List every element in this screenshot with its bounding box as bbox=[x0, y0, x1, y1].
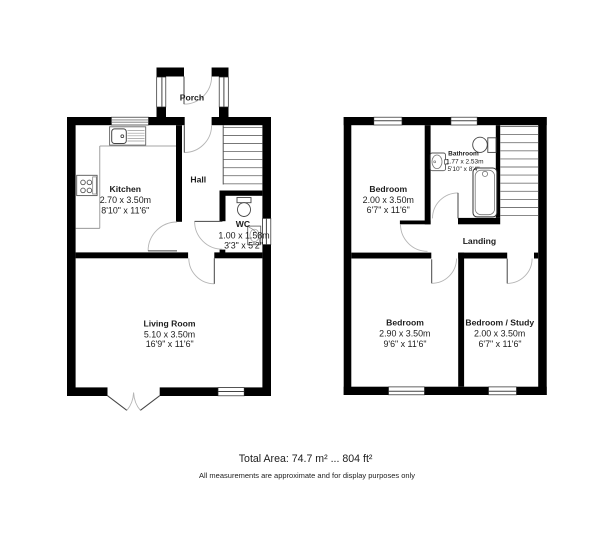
svg-text:Bedroom / Study: Bedroom / Study bbox=[465, 318, 534, 328]
svg-text:Bathroom: Bathroom bbox=[448, 150, 479, 157]
svg-text:9'6" x 11'6": 9'6" x 11'6" bbox=[383, 339, 426, 349]
svg-text:5.10 x 3.50m: 5.10 x 3.50m bbox=[144, 329, 195, 339]
svg-text:Hall: Hall bbox=[190, 174, 206, 184]
svg-text:1.00 x 1.58m: 1.00 x 1.58m bbox=[218, 231, 269, 241]
svg-text:Bedroom: Bedroom bbox=[386, 318, 424, 328]
svg-text:All measurements are approxima: All measurements are approximate and for… bbox=[199, 471, 415, 480]
svg-text:3'3" x 5'2": 3'3" x 5'2" bbox=[224, 241, 263, 251]
svg-text:Living Room: Living Room bbox=[143, 319, 195, 329]
svg-text:6'7" x 11'6": 6'7" x 11'6" bbox=[367, 205, 410, 215]
svg-text:Bedroom: Bedroom bbox=[369, 184, 407, 194]
svg-text:6'7" x 11'6": 6'7" x 11'6" bbox=[478, 339, 521, 349]
svg-text:5'10" x 8'4": 5'10" x 8'4" bbox=[447, 166, 480, 173]
svg-text:2.00 x 3.50m: 2.00 x 3.50m bbox=[363, 195, 414, 205]
svg-text:1.77 x 2.53m: 1.77 x 2.53m bbox=[446, 158, 484, 165]
svg-text:Landing: Landing bbox=[463, 236, 496, 246]
svg-text:16'9" x 11'6": 16'9" x 11'6" bbox=[146, 339, 194, 349]
svg-text:WC: WC bbox=[236, 219, 250, 229]
svg-text:Kitchen: Kitchen bbox=[110, 184, 142, 194]
svg-text:8'10" x 11'6": 8'10" x 11'6" bbox=[101, 205, 149, 215]
svg-text:2.70 x 3.50m: 2.70 x 3.50m bbox=[100, 195, 151, 205]
svg-text:Porch: Porch bbox=[180, 92, 204, 102]
svg-text:2.90 x 3.50m: 2.90 x 3.50m bbox=[379, 329, 430, 339]
svg-text:Total Area: 74.7 m² ... 804 ft: Total Area: 74.7 m² ... 804 ft² bbox=[239, 453, 373, 465]
svg-text:2.00 x 3.50m: 2.00 x 3.50m bbox=[474, 329, 525, 339]
